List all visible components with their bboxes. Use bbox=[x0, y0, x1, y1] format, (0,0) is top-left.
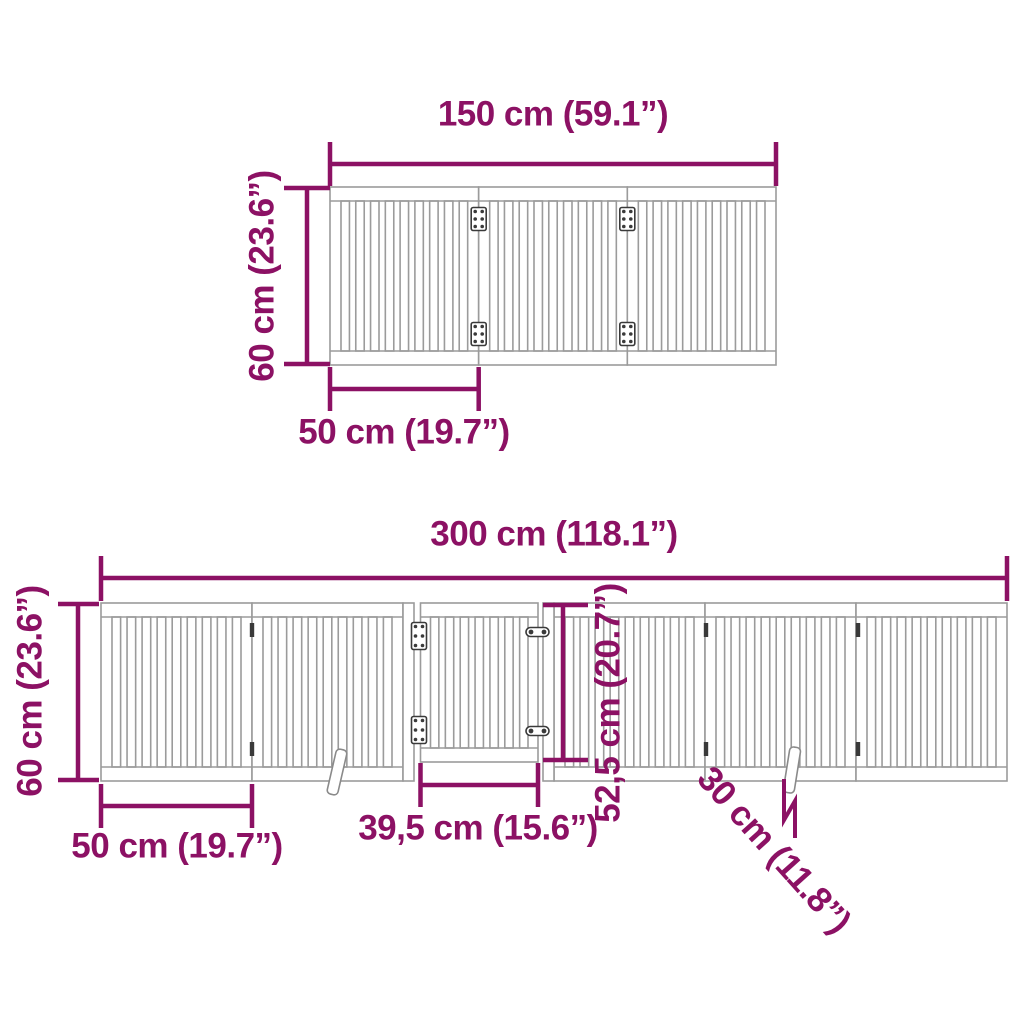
top-height-label: 60 cm (23.6”) bbox=[243, 170, 282, 381]
top-diagram: 150 cm (59.1”) 60 cm (23.6”) 50 cm (19.7… bbox=[243, 95, 777, 452]
hinge-icon bbox=[620, 323, 635, 346]
top-panel-width-dimension-line bbox=[330, 367, 479, 411]
panel-joint-mark bbox=[856, 742, 860, 756]
panel-joint-mark bbox=[704, 742, 708, 756]
panel-frame bbox=[330, 187, 479, 365]
bottom-height-label: 60 cm (23.6”) bbox=[11, 585, 50, 796]
bottom-panel-width-label: 50 cm (19.7”) bbox=[71, 827, 282, 866]
gate-panel bbox=[479, 187, 628, 365]
panel-joint-mark bbox=[250, 623, 254, 637]
gate-panel bbox=[856, 603, 1007, 781]
hinge-icon bbox=[412, 623, 427, 650]
hinge-icon bbox=[471, 323, 486, 346]
top-width-dimension-line bbox=[330, 142, 776, 186]
top-height-dimension-line bbox=[284, 188, 330, 364]
panel-joint-mark bbox=[704, 623, 708, 637]
gate-panel bbox=[627, 187, 776, 365]
top-width-label: 150 cm (59.1”) bbox=[438, 95, 668, 134]
gate-panel bbox=[101, 603, 252, 781]
hinge-icon bbox=[620, 208, 635, 231]
door-width-dimension-line bbox=[421, 763, 539, 807]
panel-frame bbox=[627, 187, 776, 365]
panel-joint-mark bbox=[250, 742, 254, 756]
top-gate-drawing bbox=[330, 187, 776, 365]
top-panel-width-label: 50 cm (19.7”) bbox=[298, 413, 509, 452]
diagram-canvas: 150 cm (59.1”) 60 cm (23.6”) 50 cm (19.7… bbox=[0, 0, 1024, 1024]
bottom-width-dimension-line bbox=[101, 556, 1007, 601]
bottom-gate-drawing bbox=[101, 603, 1007, 781]
bottom-height-dimension-line bbox=[58, 604, 99, 780]
hinge-icon bbox=[471, 208, 486, 231]
panel-frame bbox=[554, 603, 705, 781]
panel-frame bbox=[705, 603, 856, 781]
bottom-diagram: 300 cm (118.1”) 60 cm (23.6”) 50 cm (19.… bbox=[11, 515, 1008, 941]
panel-joint-mark bbox=[856, 623, 860, 637]
latch-icon bbox=[526, 727, 549, 736]
panel-frame bbox=[101, 603, 252, 781]
bottom-panel-width-dimension-line bbox=[101, 784, 252, 828]
door-height-label: 52,5 cm (20.7”) bbox=[589, 583, 628, 823]
door-leaf bbox=[421, 603, 539, 762]
panel-frame bbox=[856, 603, 1007, 781]
bottom-width-label: 300 cm (118.1”) bbox=[430, 515, 677, 554]
gate-panel bbox=[330, 187, 479, 365]
door-width-label: 39,5 cm (15.6”) bbox=[358, 809, 598, 848]
latch-icon bbox=[526, 628, 549, 637]
gate-panel bbox=[705, 603, 856, 781]
gate-panel bbox=[554, 603, 705, 781]
product-dimension-diagram: 150 cm (59.1”) 60 cm (23.6”) 50 cm (19.7… bbox=[0, 0, 1024, 1024]
panel-frame bbox=[252, 603, 403, 781]
gate-panel bbox=[252, 603, 403, 781]
hinge-icon bbox=[412, 717, 427, 744]
support-foot-label: 30 cm (11.8”) bbox=[690, 759, 859, 941]
panel-frame bbox=[479, 187, 628, 365]
